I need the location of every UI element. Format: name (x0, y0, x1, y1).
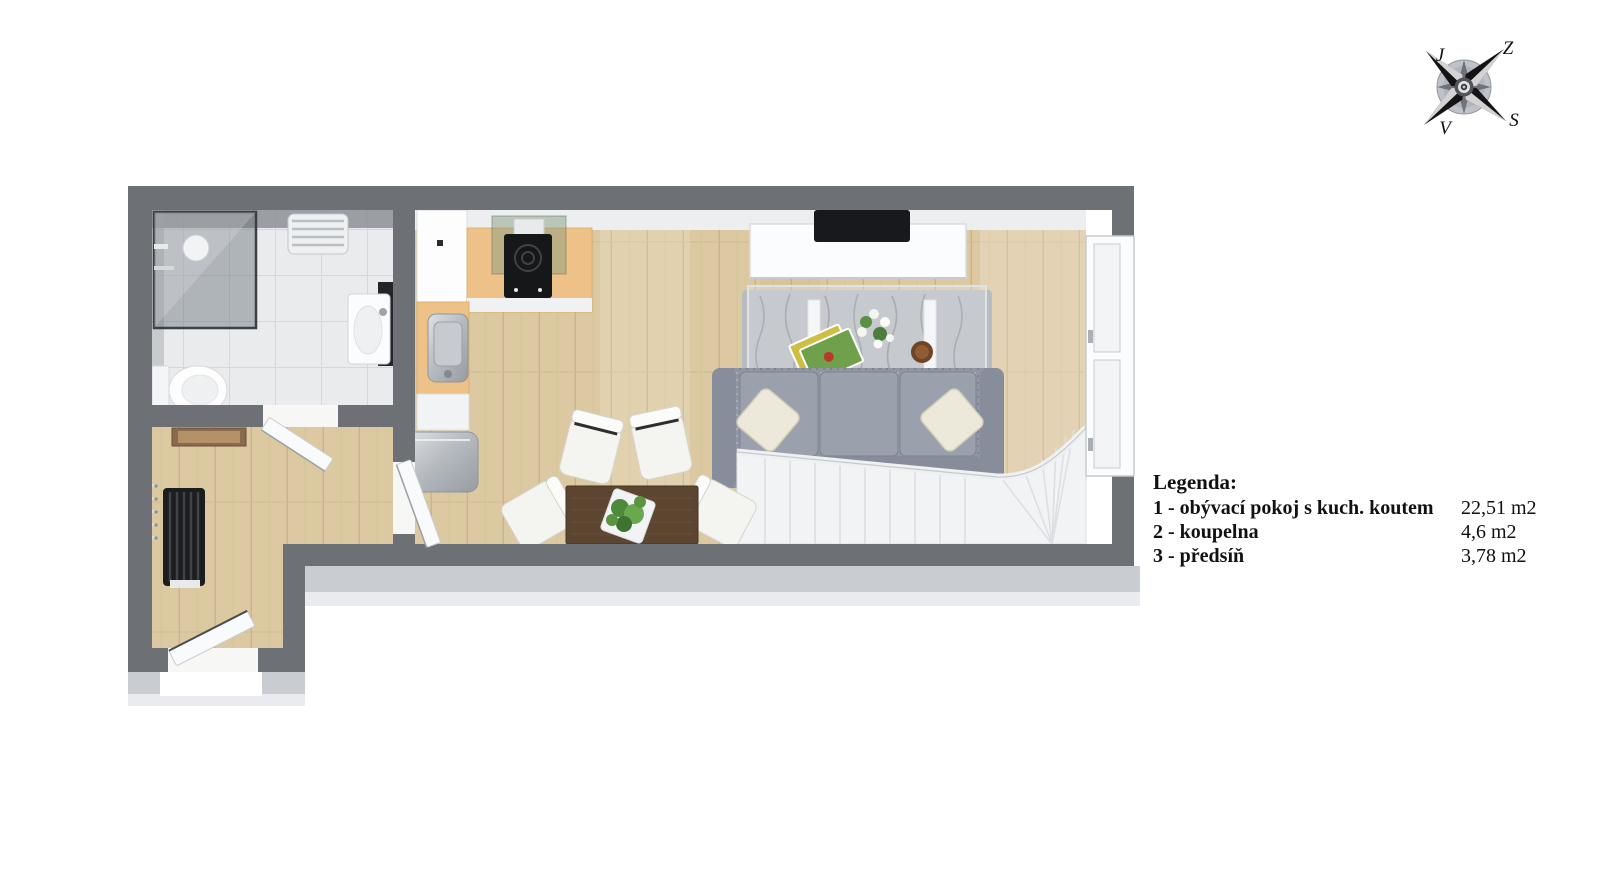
legend-item-area: 4,6 m2 (1461, 520, 1517, 544)
legend-title: Legenda: (1153, 470, 1537, 494)
wall-bathroom-bottom-stub (338, 405, 415, 427)
bowl (911, 341, 933, 363)
legend-item: 3 - předsíň 3,78 m2 (1153, 544, 1537, 568)
kitchen-low-cabinet (417, 394, 469, 430)
floor-plan-drawing: J Z V S (0, 0, 1600, 878)
compass-letter-sw: V (1439, 118, 1453, 139)
window-handle (1088, 438, 1093, 451)
towel-radiator (288, 214, 348, 254)
radiator (163, 488, 205, 588)
compass-letter-ne: Z (1503, 38, 1514, 59)
legend: Legenda: 1 - obývací pokoj s kuch. koute… (1153, 470, 1537, 568)
kitchen-tall-cabinet (417, 210, 467, 302)
legend-item: 2 - koupelna 4,6 m2 (1153, 520, 1537, 544)
wall-hall-bottom-left (128, 648, 168, 672)
wall-right-top (1112, 186, 1134, 242)
kitchen-sink (428, 314, 468, 382)
wall-right-bottom (1112, 470, 1134, 566)
window (1086, 236, 1134, 476)
tv (814, 210, 910, 242)
wall-left (128, 186, 152, 672)
wall-bathroom-bottom (152, 405, 263, 427)
washbasin (348, 282, 393, 366)
cooktop (504, 234, 552, 298)
legend-item-area: 22,51 m2 (1461, 496, 1537, 520)
window-handle (1088, 330, 1093, 343)
wall-hall-living-stub-top (393, 430, 415, 462)
legend-item-label: 2 - koupelna (1153, 520, 1461, 544)
legend-item: 1 - obývací pokoj s kuch. koutem 22,51 m… (1153, 496, 1537, 520)
compass-rose: J Z V S (1424, 38, 1519, 139)
legend-item-label: 3 - předsíň (1153, 544, 1461, 568)
wall-bathroom-right (393, 210, 415, 430)
floor-plan-page: J Z V S Legenda: 1 - obývací pokoj s kuc… (0, 0, 1600, 878)
compass-letter-se: S (1509, 110, 1519, 131)
shower (154, 212, 256, 328)
doormat (172, 428, 246, 446)
counter-front (467, 298, 592, 312)
legend-item-label: 1 - obývací pokoj s kuch. koutem (1153, 496, 1461, 520)
wall-hall-living-stub-bottom (393, 534, 415, 566)
wall-top (128, 186, 1134, 210)
legend-item-area: 3,78 m2 (1461, 544, 1527, 568)
